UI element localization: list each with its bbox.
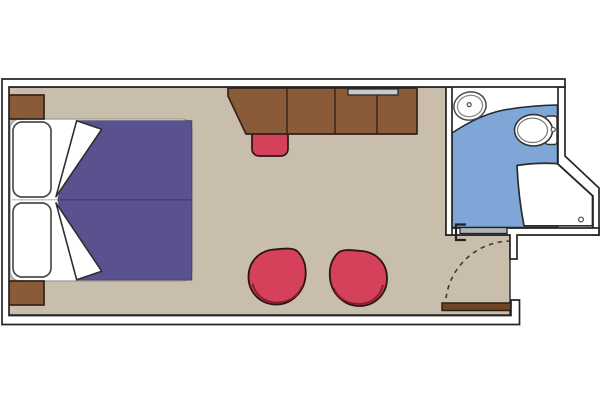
pillow-top — [13, 122, 51, 197]
armchair-seat — [330, 250, 387, 306]
armchair-seat — [249, 249, 306, 305]
toilet — [515, 115, 558, 146]
armchair-right — [330, 250, 387, 306]
shower-drain — [579, 217, 584, 222]
tv — [348, 89, 398, 95]
toilet-flush-button — [551, 127, 555, 131]
double-bed — [10, 119, 192, 281]
wall-bathroom-divider — [446, 87, 452, 235]
armchair-left — [249, 249, 306, 305]
nightstand-top — [9, 95, 44, 119]
floorplan-svg — [0, 0, 600, 400]
sink-drain — [467, 102, 472, 107]
floorplan-page — [0, 0, 600, 400]
toilet-bowl — [515, 115, 553, 146]
pillow-bottom — [13, 203, 51, 277]
cabin-room — [8, 87, 511, 315]
nightstand-bottom — [9, 281, 44, 305]
bathroom-sliding-door — [460, 228, 507, 234]
bathroom — [451, 87, 593, 228]
entry-door — [442, 303, 511, 311]
